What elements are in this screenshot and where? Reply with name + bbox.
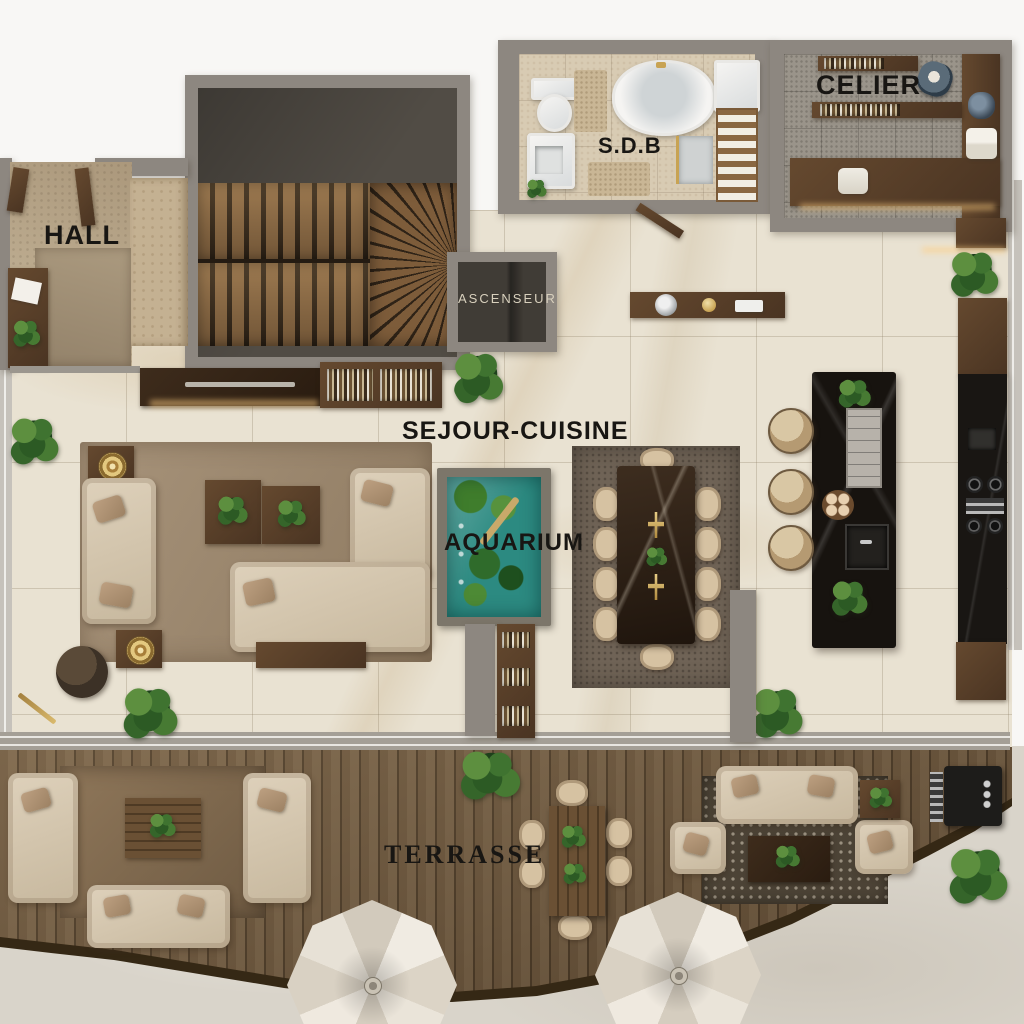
island-plant-top <box>836 378 874 410</box>
dining-chair-l4 <box>593 607 620 641</box>
hall-threshold <box>10 366 140 373</box>
folded-towels <box>966 128 997 159</box>
bathroom-label: S.D.B <box>598 133 662 159</box>
kitchen-cabinet-mid <box>958 298 1007 376</box>
towel-ladder <box>716 108 758 202</box>
white-tray <box>735 300 763 312</box>
dining-chair-head-bottom <box>640 644 674 670</box>
cooktop-burner-left <box>966 476 983 493</box>
soundbar <box>185 382 295 387</box>
bath-mat-lower <box>588 162 650 196</box>
shower-tray <box>676 136 713 184</box>
terrace-dining-table <box>549 806 605 916</box>
dining-chair-r2 <box>694 527 721 561</box>
terrace-dining-plant-1 <box>560 824 588 850</box>
dining-centerpiece <box>645 546 669 568</box>
bbq-side-rack <box>930 772 943 822</box>
pantry-shelf-bottles <box>820 104 900 116</box>
terrace-table-flowers <box>148 812 178 840</box>
staircase-winder-fan <box>370 183 457 346</box>
sectional-end-table <box>256 642 366 668</box>
bathtub <box>612 60 716 136</box>
washing-machine <box>714 60 760 112</box>
dining-chair-r1 <box>694 487 721 521</box>
terrace-coffee-table-right-plant <box>774 844 802 870</box>
toilet-bowl <box>537 94 572 132</box>
console-plant <box>12 318 42 350</box>
silver-plate <box>655 294 677 316</box>
aquarium-partition-wall <box>465 624 495 736</box>
terrace-bush <box>946 844 1012 910</box>
left-window-frame <box>0 368 12 748</box>
terrace-side-table-plant <box>868 786 894 810</box>
sectional-sofa-chaise <box>230 562 430 652</box>
living-plant-sill-left <box>120 684 182 744</box>
island-plant-bottom <box>830 578 870 620</box>
pantry-shelf-jars <box>824 58 884 69</box>
terrace-dining-chair-bottom <box>558 914 592 940</box>
bar-stool-3 <box>768 525 814 571</box>
sink-basin <box>535 146 563 174</box>
kitchen-counter-plant <box>948 248 1002 302</box>
dining-chair-r3 <box>694 567 721 601</box>
hall-rug <box>35 248 131 366</box>
bookshelf-books-left <box>327 369 373 401</box>
kitchen-tall-cabinet-top <box>956 218 1006 248</box>
right-window-frame <box>1008 180 1022 650</box>
hall-stone-wall <box>130 178 188 346</box>
staircase-lower-flight <box>198 263 370 346</box>
dining-chair-r4 <box>694 607 721 641</box>
bath-mat-upper <box>574 70 607 132</box>
bookshelf-books-right <box>380 369 432 401</box>
parasol-right-hub <box>670 967 688 985</box>
pantry-bottom-counter <box>790 158 1000 206</box>
terrace-dining-chair-top <box>556 780 588 806</box>
pantry-counter-light <box>800 204 995 210</box>
cooktop-grate <box>966 498 1004 514</box>
aquarium-shelf-books-3 <box>502 706 530 726</box>
terrace-sofa-tr-pillow-2 <box>806 774 835 798</box>
bathroom-plant <box>526 178 548 200</box>
island-faucet <box>860 540 872 544</box>
terrace-dining-plant-2 <box>562 862 588 886</box>
aquarium-label: AQUARIUM <box>444 529 584 557</box>
cooktop-burner-low-right <box>987 518 1003 534</box>
tv-console-light <box>150 400 318 407</box>
round-pouf <box>56 646 108 698</box>
coffee-table-plant-left <box>216 494 250 528</box>
kitchen-cabinet-bottom <box>956 642 1006 700</box>
bar-stool-2 <box>768 469 814 515</box>
gold-ball <box>702 298 716 312</box>
dining-chair-l3 <box>593 567 620 601</box>
deck-planter <box>455 750 527 802</box>
floor-plan-scene: HALL ASCENSEUR S.D.B CELIER SEJOUR-CUISI… <box>0 0 1024 1024</box>
island-sink <box>845 524 889 570</box>
living-plant-top-left <box>8 414 62 470</box>
dining-kitchen-wall-stub <box>730 590 756 742</box>
laundry-basket <box>838 168 868 194</box>
table-lamp-bottom <box>126 636 155 665</box>
living-kitchen-label: SEJOUR-CUISINE <box>402 417 629 446</box>
aquarium-shelf-books-2 <box>502 668 530 686</box>
shelf-side-plant <box>452 348 506 410</box>
dining-chair-l1 <box>593 487 620 521</box>
egg-tray <box>822 490 854 520</box>
staircase-upper-flight <box>198 183 370 261</box>
hall-label: HALL <box>44 220 120 251</box>
terrace-label: TERRASSE <box>384 840 545 870</box>
bbq-knobs <box>978 778 996 808</box>
pantry-label: CELIER <box>816 70 921 101</box>
cooktop-burner-low-left <box>966 518 982 534</box>
living-plant-sill-right <box>750 684 806 744</box>
decor-jar <box>968 92 995 119</box>
parasol-left-hub <box>364 977 382 995</box>
table-lamp-top <box>98 452 127 481</box>
terrace-dining-chair-r2 <box>606 856 632 886</box>
aquarium-shelf-books-1 <box>502 632 530 648</box>
terrace-dining-chair-r1 <box>606 818 632 848</box>
elevator-label: ASCENSEUR <box>458 291 546 306</box>
kitchen-sink <box>968 428 996 450</box>
dining-chair-l2 <box>593 527 620 561</box>
bar-stool-1 <box>768 408 814 454</box>
bathtub-faucet <box>656 62 666 68</box>
island-glass-cabinet <box>846 408 882 488</box>
coffee-table-plant-right <box>276 498 308 530</box>
cooktop-burner-right <box>987 476 1004 493</box>
